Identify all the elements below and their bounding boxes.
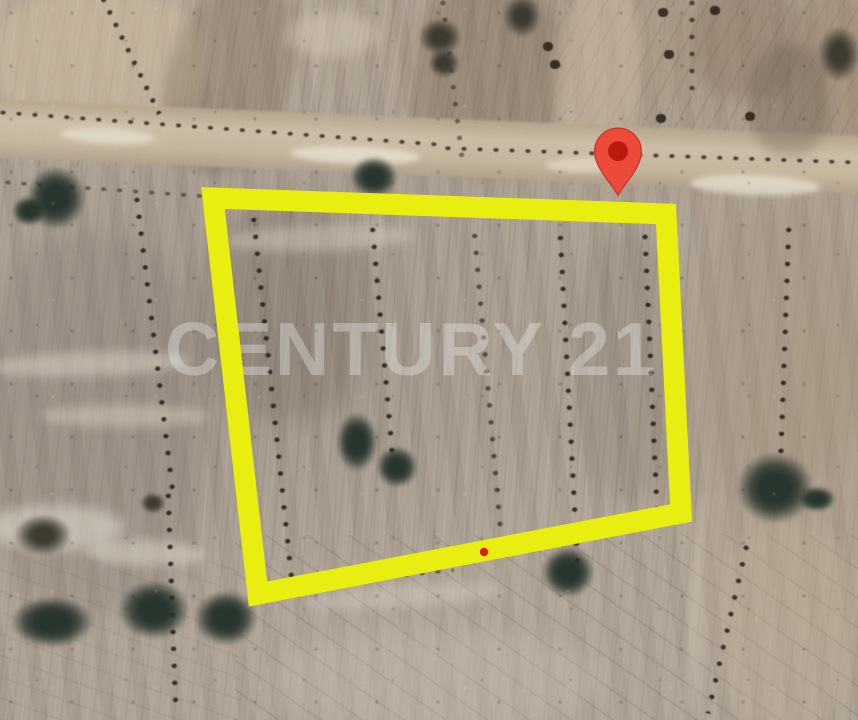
satellite-map[interactable]: CENTURY 21 — [0, 0, 858, 720]
map-pin-core — [608, 141, 628, 161]
map-pin-body — [595, 128, 642, 195]
map-pin-icon[interactable] — [589, 126, 647, 204]
plot-boundary-overlay — [0, 0, 858, 720]
red-dot-annotation — [480, 548, 488, 556]
plot-boundary-polygon[interactable] — [213, 198, 681, 594]
